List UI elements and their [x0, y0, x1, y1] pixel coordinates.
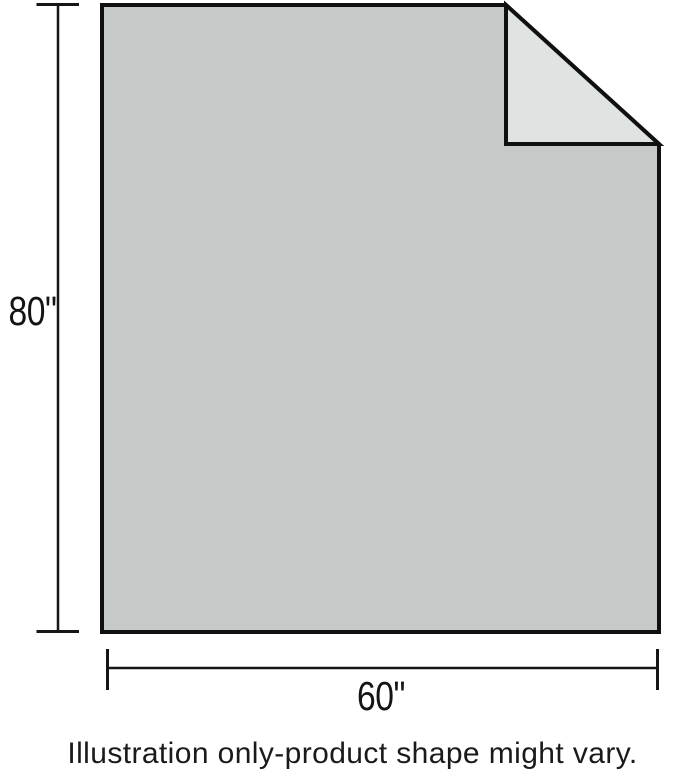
- caption-text: Illustration only-product shape might va…: [13, 737, 679, 772]
- product-dimension-illustration: 80" 60" Illustration only-product shape …: [0, 0, 679, 778]
- height-dimension-label: 80": [8, 291, 47, 332]
- folded-corner-shape: [506, 5, 659, 144]
- illustration-canvas: [0, 0, 679, 778]
- width-dimension-label: 60": [357, 676, 405, 717]
